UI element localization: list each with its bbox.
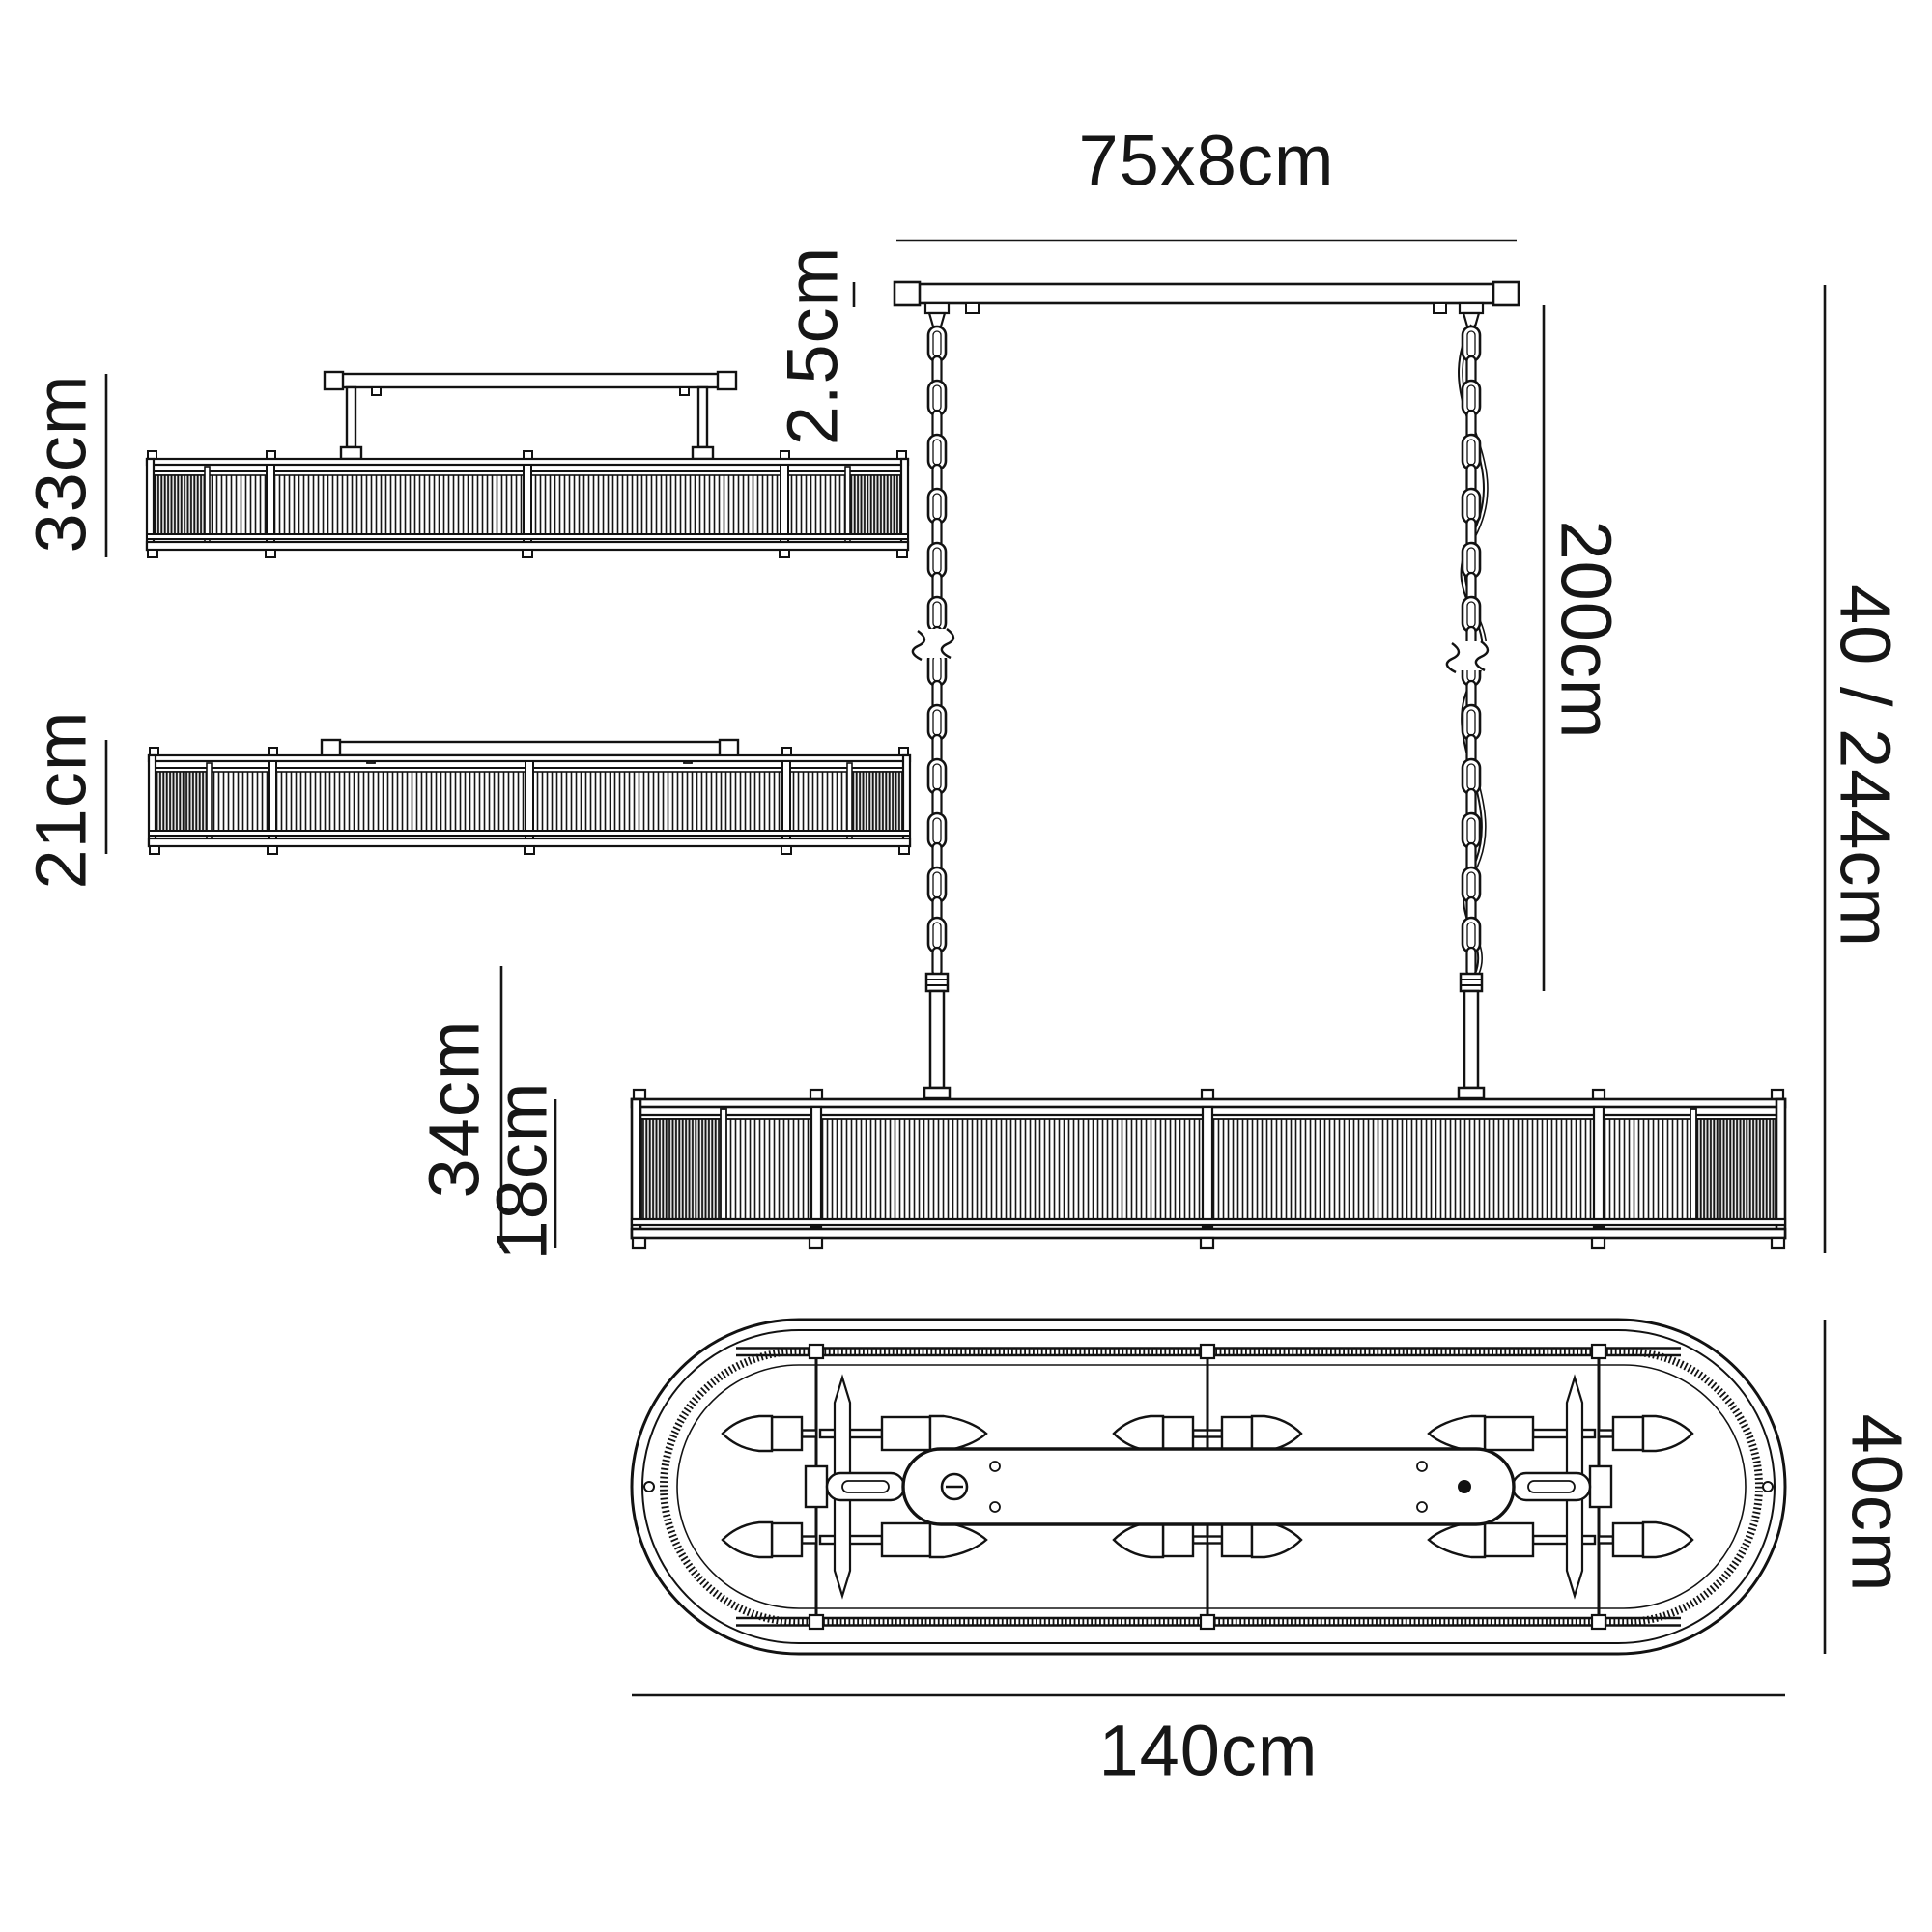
label-flush-height: 21cm xyxy=(21,711,101,890)
semi-flush-stems xyxy=(341,387,713,459)
rod-left xyxy=(924,974,950,1098)
semi-flush-top-nubs xyxy=(148,451,906,459)
rod-right xyxy=(1459,974,1484,1098)
screw-dot xyxy=(1458,1480,1471,1493)
chain-left xyxy=(913,303,958,976)
label-fixture-width: 40cm xyxy=(1837,1414,1918,1593)
view-plan xyxy=(632,1320,1785,1654)
pendant-body xyxy=(632,1090,1785,1248)
label-fixture-length: 140cm xyxy=(1098,1711,1318,1791)
label-body-height: 18cm xyxy=(482,1082,562,1261)
plan-center-plate xyxy=(903,1449,1514,1524)
semi-flush-body xyxy=(147,459,908,557)
technical-drawing: 75x8cm 2.5cm 200cm 40 / 244cm 33cm 21cm … xyxy=(0,0,1932,1932)
view-flush xyxy=(149,740,910,854)
label-semi-flush-height: 33cm xyxy=(21,375,101,554)
label-chain-length: 200cm xyxy=(1547,520,1627,739)
semi-flush-canopy xyxy=(325,372,736,395)
chain-right xyxy=(1447,303,1492,976)
label-canopy-size: 75x8cm xyxy=(1078,121,1334,201)
flush-body xyxy=(149,755,910,854)
lighting-dimension-diagram: 75x8cm 2.5cm 200cm 40 / 244cm 33cm 21cm … xyxy=(0,0,1932,1932)
pendant-canopy xyxy=(895,282,1519,313)
label-canopy-thickness: 2.5cm xyxy=(773,246,853,446)
label-overall-height: 40 / 244cm xyxy=(1826,584,1906,948)
